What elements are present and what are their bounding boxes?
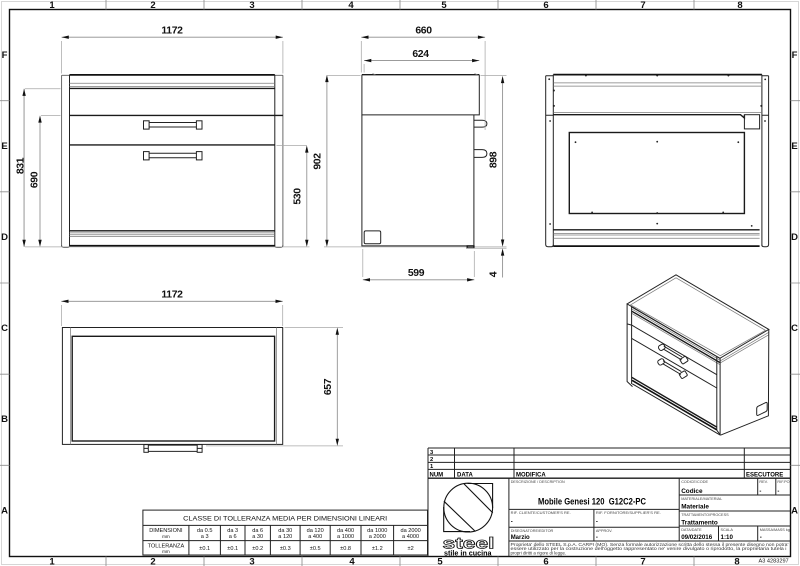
svg-text:mm: mm xyxy=(162,534,170,539)
svg-text:1: 1 xyxy=(49,0,55,11)
svg-text:B: B xyxy=(1,414,8,425)
svg-text:4: 4 xyxy=(349,557,355,566)
svg-text:stile in cucina: stile in cucina xyxy=(444,548,493,557)
svg-text:F: F xyxy=(792,50,798,61)
svg-text:REV.: REV. xyxy=(759,480,768,484)
svg-text:a 400: a 400 xyxy=(308,534,322,540)
svg-text:1172: 1172 xyxy=(161,290,183,301)
svg-text:-: - xyxy=(511,520,513,526)
svg-text:2: 2 xyxy=(150,0,155,11)
svg-text:DATA: DATA xyxy=(457,473,473,479)
svg-text:-: - xyxy=(760,534,762,541)
svg-text:a 6: a 6 xyxy=(229,534,237,540)
svg-text:3: 3 xyxy=(249,557,254,566)
svg-text:a 1000: a 1000 xyxy=(337,534,354,540)
svg-text:Marzio: Marzio xyxy=(511,535,530,541)
svg-text:A3 4283297: A3 4283297 xyxy=(759,559,789,565)
svg-text:F: F xyxy=(2,50,8,61)
svg-text:DATA/DATE: DATA/DATE xyxy=(681,528,702,532)
svg-text:±2: ±2 xyxy=(408,546,414,552)
svg-text:a 2000: a 2000 xyxy=(369,534,386,540)
svg-text:±1.2: ±1.2 xyxy=(372,546,383,552)
svg-text:624: 624 xyxy=(412,49,429,60)
svg-text:7: 7 xyxy=(640,557,645,566)
svg-text:propri diritti a rigore di leg: propri diritti a rigore di legge. xyxy=(511,551,567,556)
svg-text:MODIFICA: MODIFICA xyxy=(516,473,546,479)
svg-text:1: 1 xyxy=(49,557,55,566)
svg-text:RIF. FORNITORE/SUPPLIER'S RE.: RIF. FORNITORE/SUPPLIER'S RE. xyxy=(596,511,661,515)
svg-text:MASSA/MASS kg: MASSA/MASS kg xyxy=(760,528,790,532)
svg-text:599: 599 xyxy=(408,268,425,279)
svg-text:660: 660 xyxy=(415,25,432,36)
svg-text:C: C xyxy=(791,323,798,334)
svg-text:6: 6 xyxy=(543,557,548,566)
svg-text:690: 690 xyxy=(30,171,41,188)
svg-text:RIF. CLIENTE/CUSTOMER'S RE.: RIF. CLIENTE/CUSTOMER'S RE. xyxy=(511,511,571,515)
svg-text:APPROV.: APPROV. xyxy=(596,529,613,533)
svg-text:ESECUTORE: ESECUTORE xyxy=(746,473,783,479)
svg-text:2: 2 xyxy=(430,457,433,463)
svg-text:a 120: a 120 xyxy=(278,534,292,540)
svg-text:1:10: 1:10 xyxy=(721,534,734,541)
svg-text:CLASSE DI TOLLERANZA MEDIA PER: CLASSE DI TOLLERANZA MEDIA PER DIMENSION… xyxy=(183,515,387,522)
svg-text:MATERIALE/MATERIAL: MATERIALE/MATERIAL xyxy=(681,497,722,501)
svg-text:-: - xyxy=(759,489,761,495)
svg-text:a 4000: a 4000 xyxy=(402,534,419,540)
svg-text:4: 4 xyxy=(488,271,499,277)
svg-text:±0.3: ±0.3 xyxy=(280,546,291,552)
svg-text:a 3: a 3 xyxy=(201,534,209,540)
svg-text:3: 3 xyxy=(249,0,254,11)
svg-text:A: A xyxy=(1,506,8,517)
svg-text:657: 657 xyxy=(323,378,334,395)
svg-text:6: 6 xyxy=(543,0,548,11)
svg-text:CODICE/CODE: CODICE/CODE xyxy=(681,480,708,484)
svg-text:902: 902 xyxy=(313,153,324,170)
svg-text:2: 2 xyxy=(150,557,155,566)
svg-text:DISEGNATORE/EDITOR: DISEGNATORE/EDITOR xyxy=(511,529,554,533)
svg-text:5: 5 xyxy=(437,557,443,566)
svg-text:±0.1: ±0.1 xyxy=(227,546,238,552)
svg-text:mm: mm xyxy=(162,549,170,554)
svg-text:7: 7 xyxy=(640,0,645,11)
svg-text:4: 4 xyxy=(348,0,354,11)
svg-text:898: 898 xyxy=(488,151,499,168)
svg-text:-: - xyxy=(596,520,598,526)
svg-text:Mobile Genesi 120 G12C2-PC: Mobile Genesi 120 G12C2-PC xyxy=(538,497,647,507)
svg-text:a 30: a 30 xyxy=(252,534,263,540)
svg-text:A: A xyxy=(791,506,798,517)
svg-text:Codice: Codice xyxy=(681,488,703,495)
svg-text:Trattamento: Trattamento xyxy=(681,519,718,526)
svg-text:D: D xyxy=(1,232,8,243)
svg-text:E: E xyxy=(1,141,7,152)
svg-text:-: - xyxy=(777,489,779,495)
svg-text:DESCRIZIONE / DESCRIPTION: DESCRIZIONE / DESCRIPTION xyxy=(511,480,565,484)
svg-text:±0.8: ±0.8 xyxy=(340,546,351,552)
svg-text:E: E xyxy=(791,141,797,152)
svg-text:09/02/2016: 09/02/2016 xyxy=(681,534,713,541)
svg-text:TRATTAMENTO/PROCESS: TRATTAMENTO/PROCESS xyxy=(681,513,729,517)
svg-text:5: 5 xyxy=(441,0,447,11)
svg-text:8: 8 xyxy=(737,0,742,11)
svg-text:B: B xyxy=(791,414,798,425)
svg-text:±0.5: ±0.5 xyxy=(310,546,321,552)
svg-text:831: 831 xyxy=(16,157,27,174)
svg-text:1172: 1172 xyxy=(161,25,183,36)
svg-text:RIF.PO.: RIF.PO. xyxy=(777,480,790,484)
svg-text:Materiale: Materiale xyxy=(681,503,709,510)
svg-text:SCALA: SCALA xyxy=(721,528,734,532)
svg-text:530: 530 xyxy=(293,188,304,205)
svg-text:NUM: NUM xyxy=(430,473,444,479)
svg-text:±0.1: ±0.1 xyxy=(199,546,210,552)
svg-text:C: C xyxy=(1,323,8,334)
svg-text:-: - xyxy=(596,535,598,541)
svg-text:8: 8 xyxy=(734,557,739,566)
svg-text:±0.2: ±0.2 xyxy=(252,546,263,552)
svg-text:D: D xyxy=(791,232,798,243)
